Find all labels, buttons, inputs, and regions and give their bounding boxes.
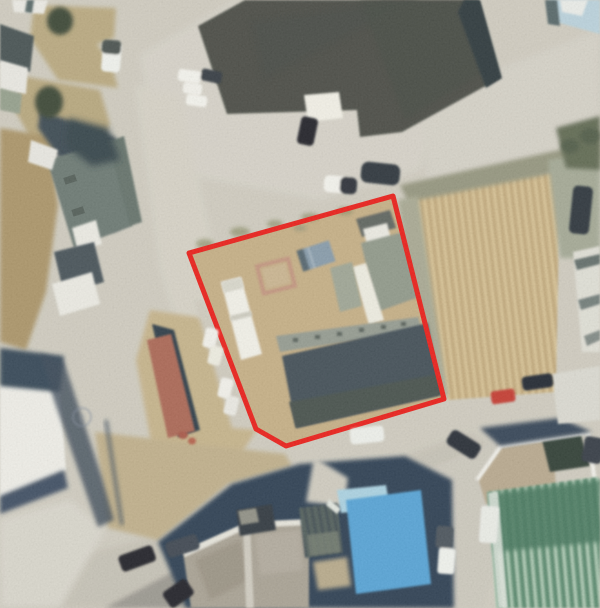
svg-text:c: c bbox=[79, 410, 86, 425]
